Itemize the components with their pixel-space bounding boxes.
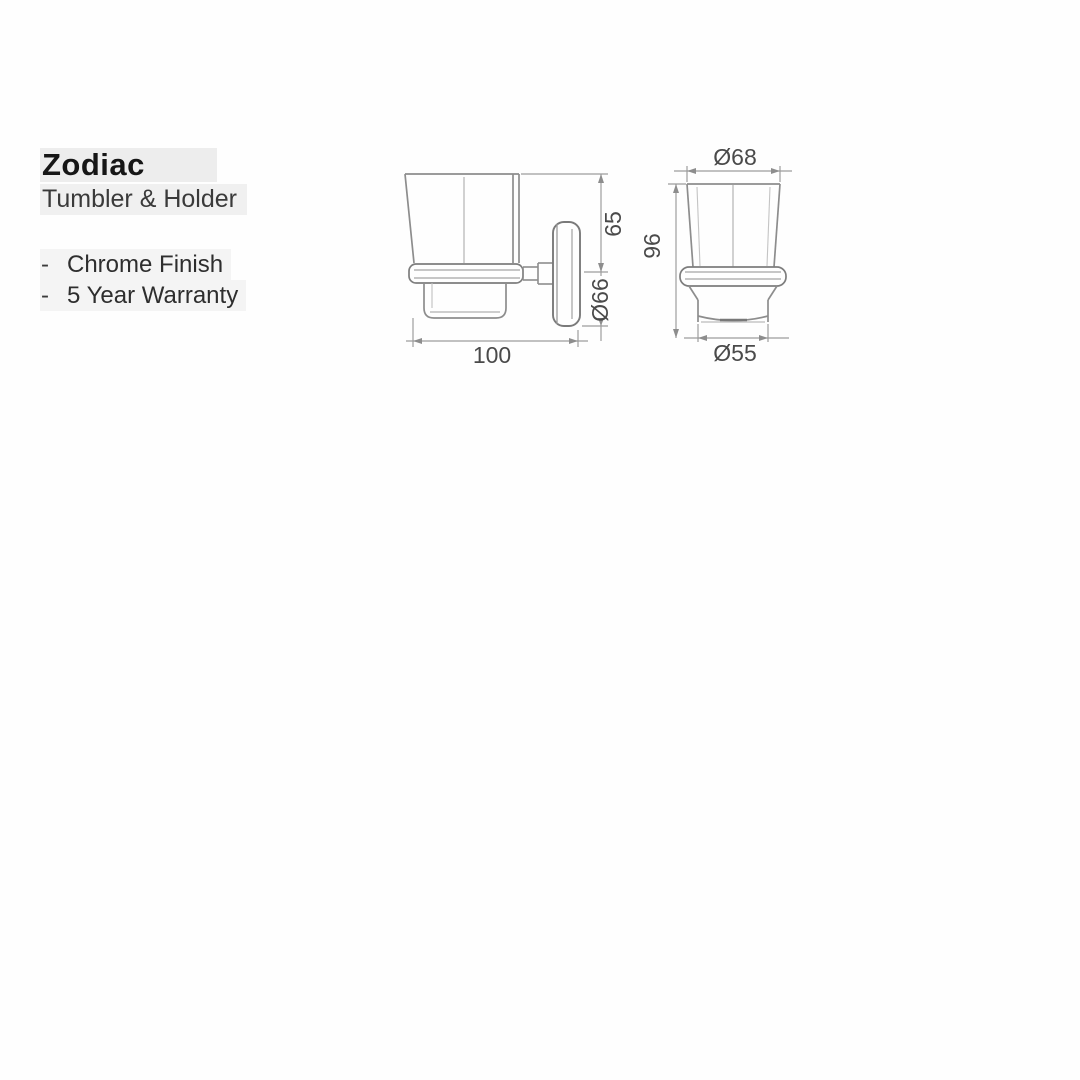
dim-label-mount-height: 65 [600, 211, 626, 237]
side-view-drawing: 65 Ø66 100 [396, 156, 636, 378]
feature-item-chrome-finish: - Chrome Finish [40, 249, 231, 280]
side-lower-cup [424, 283, 506, 318]
feature-item-warranty: - 5 Year Warranty [40, 280, 246, 311]
side-wall-plate [553, 222, 580, 326]
dim-label-overall-height: 96 [639, 233, 665, 259]
feature-text: 5 Year Warranty [67, 280, 238, 311]
front-dim-arrows [673, 168, 780, 341]
side-tumbler-outline [405, 174, 519, 263]
side-holder-ring [409, 264, 523, 283]
front-tumbler-outline [687, 184, 780, 267]
front-view-drawing: Ø68 96 Ø55 [636, 143, 806, 378]
bullet-dash: - [40, 280, 67, 311]
dim-label-depth: 100 [473, 342, 511, 368]
bullet-dash: - [40, 249, 67, 280]
product-info-block: Zodiac Tumbler & Holder - Chrome Finish … [40, 148, 340, 311]
product-name: Zodiac [40, 148, 217, 182]
side-mounting-arm [523, 263, 553, 284]
product-subtitle: Tumbler & Holder [40, 184, 247, 215]
dim-label-plate-diameter: Ø66 [587, 278, 613, 321]
spec-sheet-page: Zodiac Tumbler & Holder - Chrome Finish … [0, 0, 1080, 1080]
feature-text: Chrome Finish [67, 249, 223, 280]
front-holder-ring [680, 267, 786, 286]
front-lower-cup [689, 286, 777, 322]
feature-list: - Chrome Finish - 5 Year Warranty [40, 249, 340, 311]
dim-label-base-diameter: Ø55 [713, 340, 756, 366]
front-dim-lines [668, 166, 792, 342]
dim-label-top-diameter: Ø68 [713, 144, 756, 170]
